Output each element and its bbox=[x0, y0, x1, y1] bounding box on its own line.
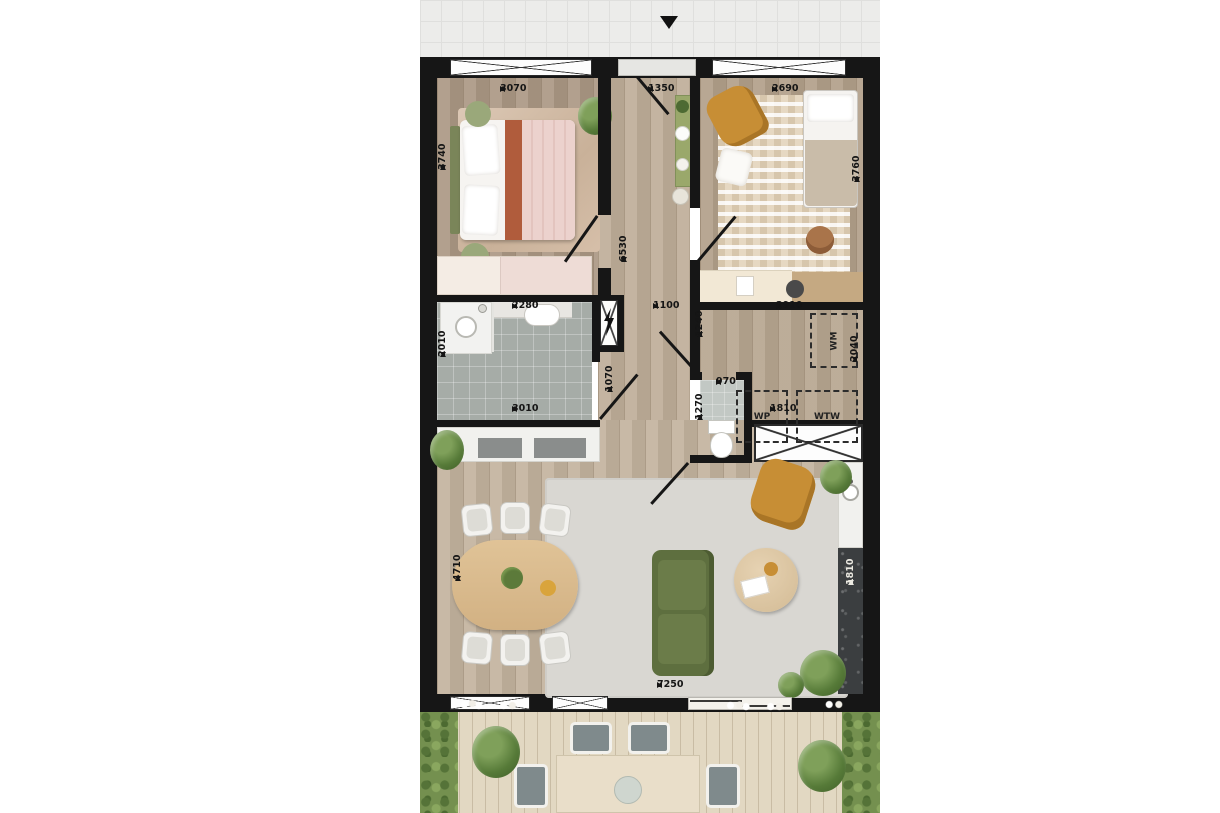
deck-flowers bbox=[724, 700, 750, 711]
dining-chair bbox=[461, 631, 494, 665]
bedroom1-window bbox=[450, 59, 592, 76]
bed1-pillow bbox=[462, 184, 501, 236]
bedroom2-desk-chair bbox=[806, 226, 834, 254]
sofa-cushion bbox=[658, 560, 706, 610]
cooktop bbox=[534, 438, 586, 458]
wall-left bbox=[420, 57, 437, 712]
deck-flowers bbox=[497, 700, 519, 711]
wall-bathroom-right-upper bbox=[592, 302, 600, 362]
washing-machine-label: WM bbox=[829, 331, 839, 350]
living-plant-bottom bbox=[800, 650, 846, 696]
bed1-headboard bbox=[450, 126, 460, 234]
cooktop bbox=[478, 438, 522, 458]
living-plant-top bbox=[820, 460, 852, 494]
toilet-bowl bbox=[710, 432, 733, 458]
wall-meter-closet-bottom bbox=[592, 346, 624, 352]
balcony-chair bbox=[570, 722, 612, 754]
balcony-hedge-left bbox=[420, 712, 458, 813]
bedroom1-wardrobe-accent bbox=[500, 257, 591, 294]
dining-chair bbox=[460, 503, 493, 538]
entrance-arrow-icon bbox=[660, 16, 678, 29]
wall-bedroom2-hall-upper bbox=[690, 78, 700, 208]
dining-chair bbox=[538, 502, 572, 537]
hall-console-plant bbox=[676, 100, 689, 113]
deck-flowers bbox=[764, 701, 786, 712]
bed1-pillow bbox=[461, 124, 500, 176]
wall-meter-closet-right bbox=[618, 295, 624, 352]
bed2-blanket bbox=[805, 140, 857, 206]
living-plant-bottom-small bbox=[778, 672, 804, 698]
floor-plan: WM WP WTW bbox=[0, 0, 1220, 813]
balcony-table-center bbox=[614, 776, 642, 804]
bed1-blanket bbox=[522, 120, 575, 240]
balcony-chair bbox=[514, 764, 548, 808]
dining-chair bbox=[538, 630, 572, 665]
living-window-mid bbox=[552, 696, 608, 710]
dining-chair bbox=[500, 502, 530, 534]
bedroom2-desk-item bbox=[736, 276, 754, 296]
wall-bedroom2-hall-lower bbox=[690, 260, 700, 302]
coffee-table-bowl bbox=[764, 562, 778, 576]
shower-head-icon bbox=[478, 304, 487, 313]
sofa-cushion bbox=[658, 614, 706, 664]
hall-console-tray bbox=[676, 158, 689, 171]
deck-flowers bbox=[458, 699, 484, 710]
deck-flowers bbox=[822, 699, 846, 710]
wall-bedroom1-hall-upper bbox=[598, 78, 611, 215]
balcony-chair bbox=[706, 764, 740, 808]
entrance-opening bbox=[618, 59, 696, 76]
dining-plate bbox=[540, 580, 556, 596]
balcony-chair bbox=[628, 722, 670, 754]
hall-console-tray bbox=[675, 126, 690, 141]
heat-pump-box: WP bbox=[736, 390, 788, 443]
dining-chair bbox=[500, 634, 530, 666]
bathroom-sink bbox=[455, 316, 477, 338]
dining-bowl bbox=[501, 567, 523, 589]
heat-pump-label: WP bbox=[754, 412, 771, 422]
wall-right bbox=[863, 57, 880, 712]
balcony-hedge-right bbox=[842, 712, 880, 813]
electric-bolt-icon bbox=[602, 308, 616, 336]
balcony-plant-right bbox=[798, 740, 846, 792]
bed2-pillow bbox=[807, 94, 854, 122]
gallery-walkway bbox=[420, 0, 880, 57]
bed1-runner bbox=[505, 120, 522, 240]
hall-basket bbox=[672, 188, 689, 205]
bedroom2-stool bbox=[786, 280, 804, 298]
balcony-plant-left bbox=[472, 726, 520, 778]
heat-recovery-box: WTW bbox=[796, 390, 858, 443]
shower-glass bbox=[492, 302, 494, 352]
heat-recovery-label: WTW bbox=[814, 412, 840, 422]
nightstand bbox=[465, 101, 491, 127]
dining-plant bbox=[430, 430, 464, 470]
wall-bathroom-bottom bbox=[437, 420, 600, 427]
bedroom2-window bbox=[712, 59, 846, 76]
